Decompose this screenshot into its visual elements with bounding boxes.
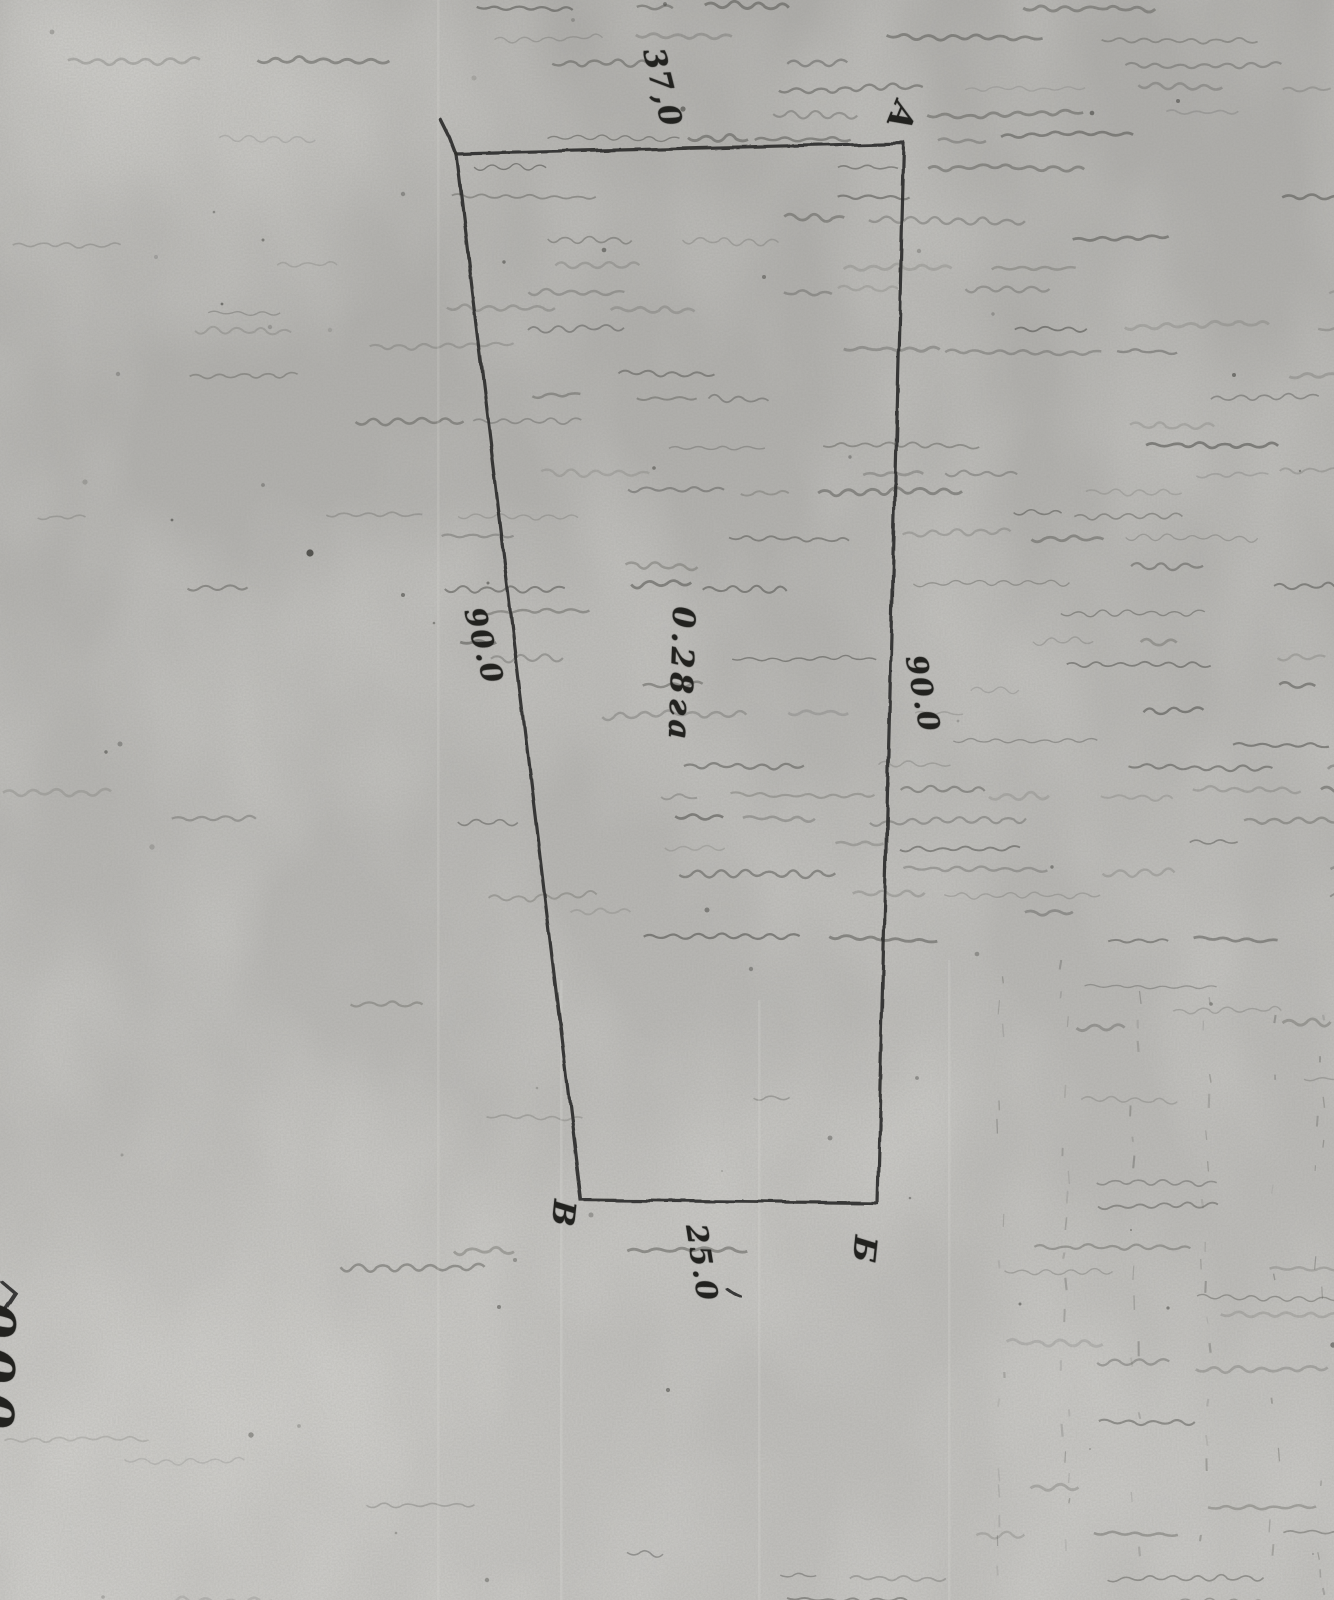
dimension-tick — [726, 1288, 740, 1296]
scanned-plan-page: 37,0 90.0 90.0 25.0 0.28га А Б В 000 — [0, 0, 1334, 1600]
corner-label-b: Б — [845, 1234, 884, 1264]
plot-diagram — [0, 0, 1334, 1600]
clipped-margin-text: 000 — [0, 1302, 26, 1439]
area-label: 0.28га — [661, 606, 702, 744]
corner-tick-mark — [441, 120, 456, 154]
corner-label-v: В — [544, 1198, 583, 1228]
